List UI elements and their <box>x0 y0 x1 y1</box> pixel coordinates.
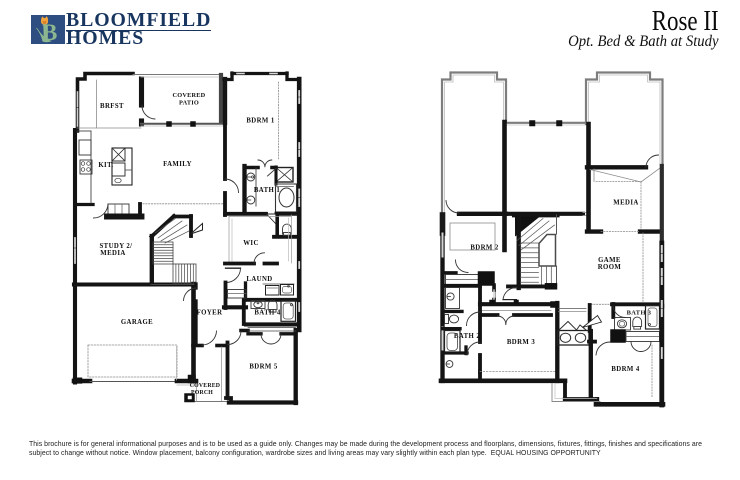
svg-text:GARAGE: GARAGE <box>121 319 153 326</box>
svg-text:BDRM 4: BDRM 4 <box>611 366 639 373</box>
svg-text:BATH 4: BATH 4 <box>254 310 280 317</box>
svg-text:BDRM 3: BDRM 3 <box>507 339 535 346</box>
svg-text:COVERED: COVERED <box>190 383 220 389</box>
svg-text:KIT.: KIT. <box>98 162 113 169</box>
svg-text:FOYER: FOYER <box>197 310 223 317</box>
svg-text:COVERED: COVERED <box>173 92 206 99</box>
svg-text:BDRM 1: BDRM 1 <box>246 118 274 125</box>
svg-text:FAMILY: FAMILY <box>163 161 192 168</box>
svg-text:LAUND: LAUND <box>246 276 272 283</box>
svg-text:BATH 1: BATH 1 <box>254 187 280 194</box>
svg-text:BRFST: BRFST <box>100 103 124 110</box>
svg-text:BDRM 5: BDRM 5 <box>249 364 277 371</box>
svg-text:GAME: GAME <box>598 257 621 264</box>
svg-text:MEDIA: MEDIA <box>100 250 125 257</box>
svg-text:BDRM 2: BDRM 2 <box>470 245 498 252</box>
svg-text:STUDY 2/: STUDY 2/ <box>100 243 133 250</box>
svg-text:WIC: WIC <box>243 240 259 247</box>
svg-text:PATIO: PATIO <box>179 100 199 107</box>
svg-text:PORCH: PORCH <box>191 390 213 396</box>
svg-text:MEDIA: MEDIA <box>613 200 638 207</box>
svg-text:ROOM: ROOM <box>598 264 622 271</box>
